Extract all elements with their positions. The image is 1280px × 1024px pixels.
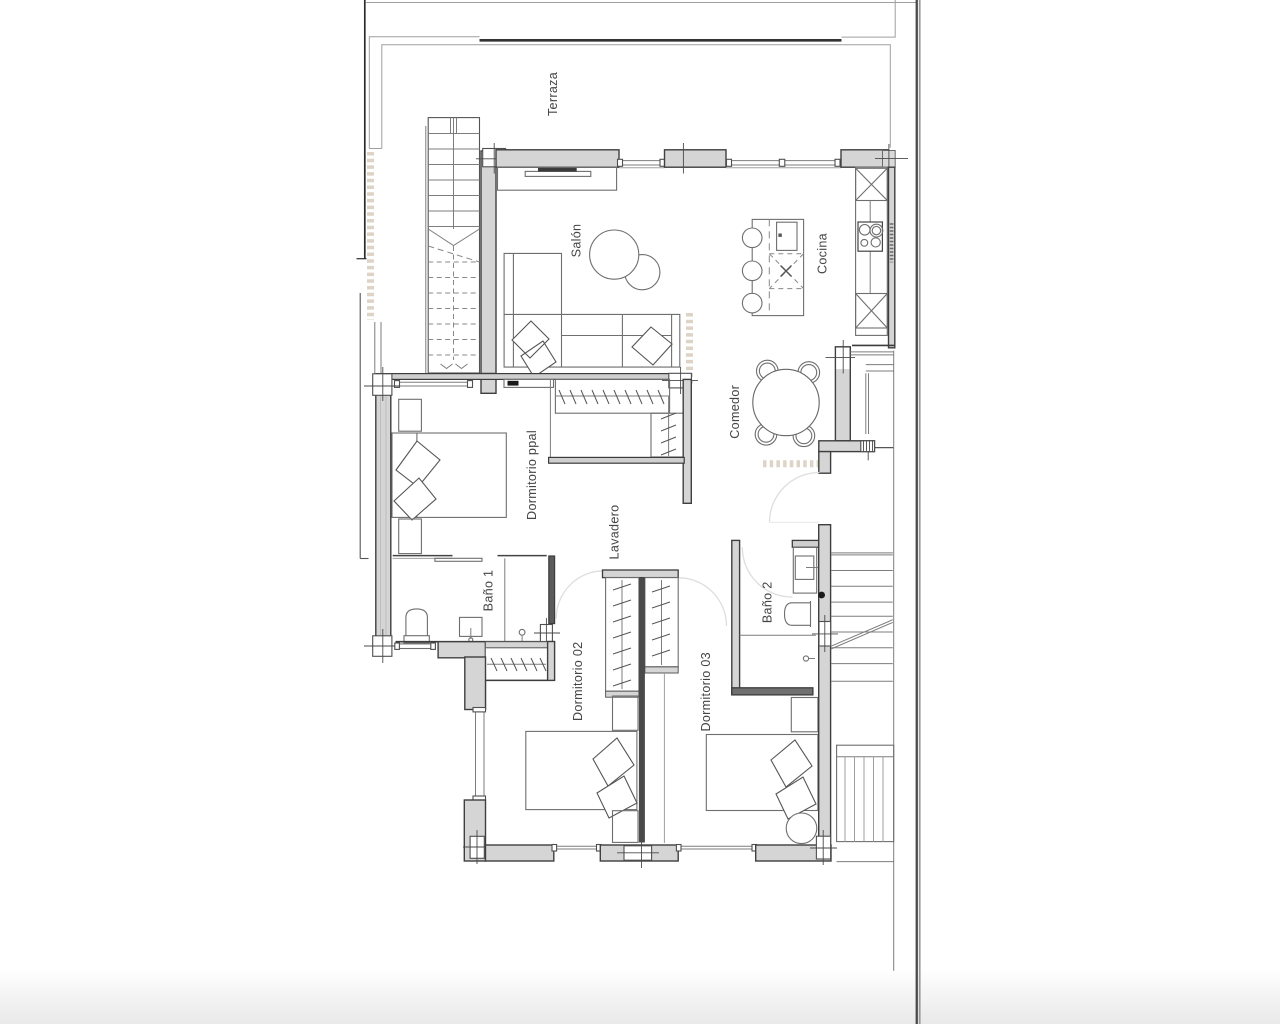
svg-text:Baño 2: Baño 2 bbox=[760, 581, 774, 623]
svg-text:Lavadero: Lavadero bbox=[607, 505, 621, 560]
svg-text:Cocina: Cocina bbox=[815, 233, 829, 274]
svg-text:Dormitorio 03: Dormitorio 03 bbox=[699, 652, 713, 732]
svg-text:Dormitorio ppal: Dormitorio ppal bbox=[525, 430, 539, 520]
svg-text:Comedor: Comedor bbox=[728, 385, 742, 439]
svg-text:Dormitorio 02: Dormitorio 02 bbox=[571, 642, 585, 722]
svg-text:Terraza: Terraza bbox=[546, 72, 560, 116]
svg-text:Baño 1: Baño 1 bbox=[481, 570, 495, 612]
svg-text:Salón: Salón bbox=[569, 224, 583, 258]
